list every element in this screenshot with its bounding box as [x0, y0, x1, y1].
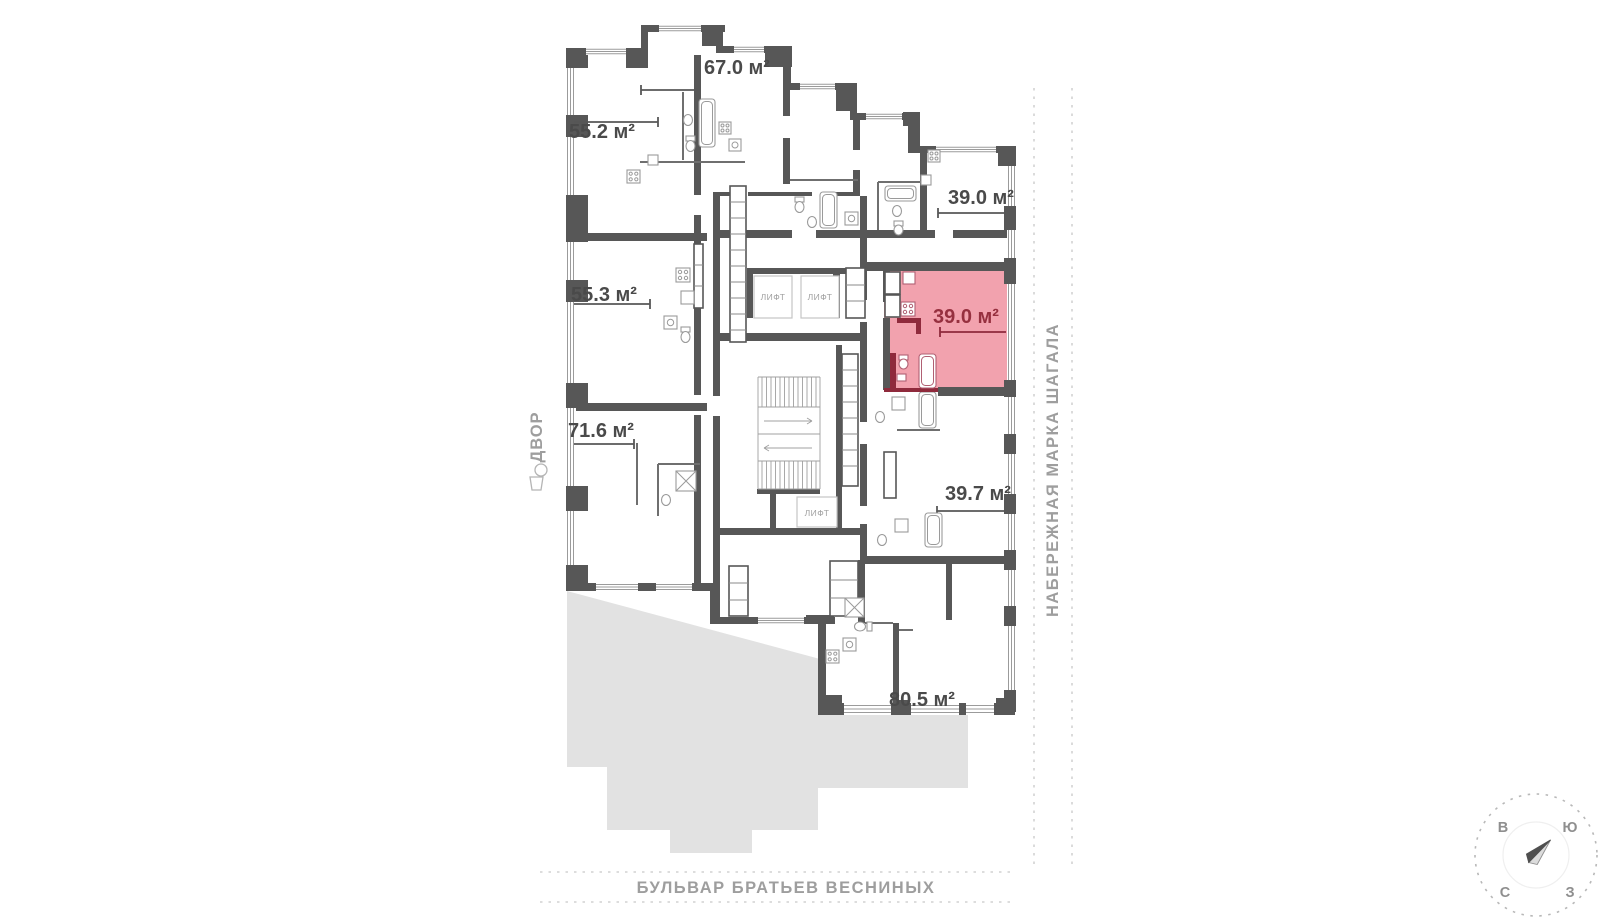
street-right-label: НАБЕРЕЖНАЯ МАРКА ШАГАЛА: [1044, 323, 1062, 617]
courtyard-label: ДВОР: [528, 411, 546, 462]
compass-letter-south: Ю: [1563, 820, 1578, 836]
compass-letter-north: С: [1500, 885, 1511, 901]
unit-80-5-hit[interactable]: [827, 565, 1007, 702]
elevator-3: ЛИФТ: [797, 497, 837, 527]
street-bottom-label: БУЛЬВАР БРАТЬЕВ ВЕСНИНЫХ: [637, 879, 936, 897]
unit-39-0-selected-hit[interactable]: [884, 271, 1008, 390]
street-right: НАБЕРЕЖНАЯ МАРКА ШАГАЛА: [1034, 88, 1072, 868]
courtyard: ДВОР: [528, 411, 547, 490]
unit-39-7-hit[interactable]: [868, 397, 1007, 555]
toilet-icon: [795, 197, 804, 213]
elevator-2-label: ЛИФТ: [808, 292, 833, 302]
compass: В Ю С З: [1475, 794, 1597, 916]
unit-71-6-hit[interactable]: [576, 412, 693, 582]
elevator-2: ЛИФТ: [801, 276, 839, 318]
street-bottom: БУЛЬВАР БРАТЬЕВ ВЕСНИНЫХ: [540, 872, 1012, 902]
elevator-1-label: ЛИФТ: [761, 292, 786, 302]
elevator-3-label: ЛИФТ: [805, 508, 830, 518]
sink-icon: [808, 217, 817, 228]
unit-55-3-hit[interactable]: [576, 242, 693, 402]
tree-icon: [530, 464, 547, 490]
unit-55-2-hit[interactable]: [576, 56, 693, 232]
compass-letter-east: В: [1498, 820, 1508, 836]
washer-icon: [845, 212, 858, 225]
compass-letter-west: З: [1565, 885, 1574, 901]
floorplan-svg: НАБЕРЕЖНАЯ МАРКА ШАГАЛА БУЛЬВАР БРАТЬЕВ …: [0, 0, 1600, 920]
unit-39-0-top-hit[interactable]: [868, 154, 1007, 261]
floorplan-page: НАБЕРЕЖНАЯ МАРКА ШАГАЛА БУЛЬВАР БРАТЬЕВ …: [0, 0, 1600, 920]
elevator-1: ЛИФТ: [754, 276, 792, 318]
